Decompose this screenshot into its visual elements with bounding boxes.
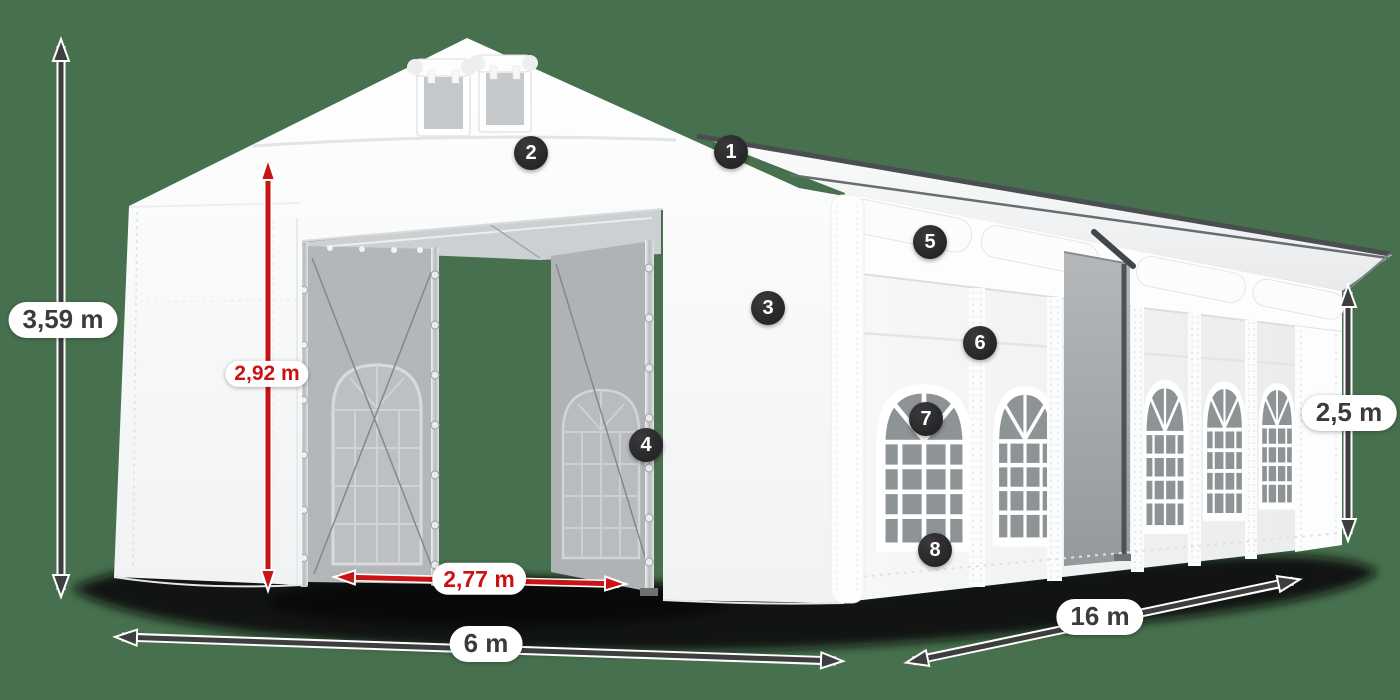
total-height-label: 3,59 m xyxy=(9,302,118,338)
tent-dimension-diagram: 3,59 m 2,92 m 2,77 m 6 m 16 m 2,5 m 1 2 … xyxy=(0,0,1400,700)
tent-width-label: 6 m xyxy=(450,626,523,662)
feature-badge-5[interactable]: 5 xyxy=(913,225,947,259)
side-window-3 xyxy=(1142,380,1188,534)
feature-badge-6[interactable]: 6 xyxy=(963,326,997,360)
side-door-opening xyxy=(1064,232,1133,566)
feature-badge-8[interactable]: 8 xyxy=(918,533,952,567)
front-opening-interior xyxy=(300,208,661,596)
side-window-4 xyxy=(1203,381,1246,520)
feature-badge-7[interactable]: 7 xyxy=(909,402,943,436)
tent-illustration xyxy=(0,0,1400,700)
feature-badge-1[interactable]: 1 xyxy=(714,135,748,169)
side-height-label: 2,5 m xyxy=(1302,395,1397,431)
right-entrance-door-panel xyxy=(551,240,658,596)
tent-length-label: 16 m xyxy=(1056,599,1143,635)
entrance-width-label: 2,77 m xyxy=(432,563,526,595)
entrance-height-label: 2,92 m xyxy=(225,361,308,387)
front-right-corner-pillar xyxy=(831,195,864,603)
gable-vent-right xyxy=(469,55,538,132)
feature-badge-3[interactable]: 3 xyxy=(751,291,785,325)
side-window-5 xyxy=(1259,383,1296,509)
gable-vent-left xyxy=(407,59,477,136)
feature-badge-4[interactable]: 4 xyxy=(629,428,663,462)
feature-badge-2[interactable]: 2 xyxy=(514,136,548,170)
left-entrance-door-panel xyxy=(308,245,439,586)
tent-front-face xyxy=(114,38,864,604)
